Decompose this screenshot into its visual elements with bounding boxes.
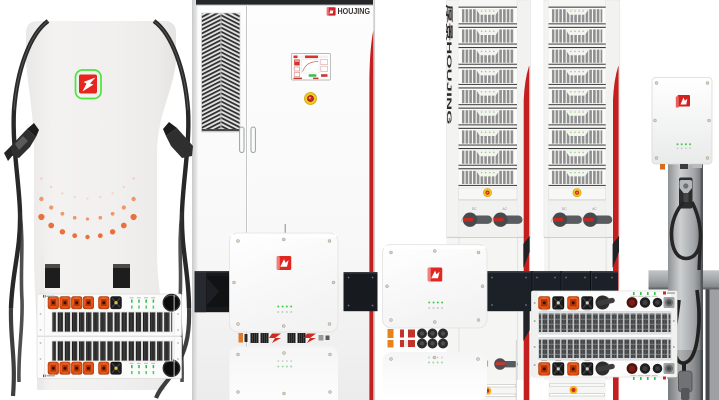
svg-text:AC: AC xyxy=(503,207,508,211)
svg-text:DC: DC xyxy=(472,207,477,211)
svg-text:AC: AC xyxy=(592,207,597,211)
svg-text:厚景HOUJING: 厚景HOUJING xyxy=(445,5,454,125)
svg-text:HOUJING: HOUJING xyxy=(338,6,371,16)
svg-text:DC: DC xyxy=(562,207,567,211)
